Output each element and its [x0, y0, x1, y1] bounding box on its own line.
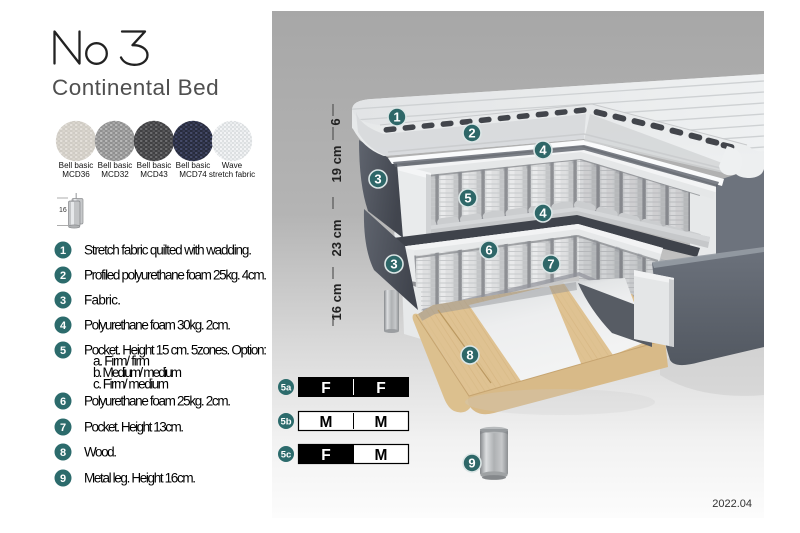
svg-text:2: 2 [60, 270, 66, 282]
svg-text:Wave: Wave [222, 161, 243, 170]
svg-text:MCD43: MCD43 [140, 170, 168, 179]
svg-text:Bell basic: Bell basic [176, 161, 211, 170]
svg-text:9: 9 [60, 473, 66, 485]
svg-text:MCD36: MCD36 [62, 170, 90, 179]
svg-text:c. Firm/ medium: c. Firm/ medium [93, 377, 169, 392]
svg-text:Polyurethane foam 25kg. 2cm.: Polyurethane foam 25kg. 2cm. [84, 394, 231, 409]
svg-text:Continental Bed: Continental Bed [52, 75, 219, 100]
svg-text:1: 1 [60, 245, 66, 257]
svg-text:Bell basic: Bell basic [137, 161, 172, 170]
svg-text:6: 6 [60, 396, 66, 408]
svg-text:Wood.: Wood. [84, 445, 117, 460]
svg-text:Bell basic: Bell basic [98, 161, 133, 170]
svg-text:4: 4 [60, 320, 67, 332]
svg-text:7: 7 [60, 422, 66, 434]
svg-text:MCD32: MCD32 [101, 170, 129, 179]
svg-text:Fabric.: Fabric. [84, 293, 121, 308]
svg-text:Profiled polyurethane foam 25k: Profiled polyurethane foam 25kg. 4cm. [84, 268, 267, 283]
svg-text:Polyurethane foam 30kg. 2cm.: Polyurethane foam 30kg. 2cm. [84, 318, 231, 333]
svg-text:MCD74: MCD74 [179, 170, 207, 179]
svg-text:Pocket. Height 13cm.: Pocket. Height 13cm. [84, 420, 184, 435]
svg-text:3: 3 [60, 295, 66, 307]
svg-text:16: 16 [59, 207, 67, 214]
svg-text:Stretch fabric quilted with wa: Stretch fabric quilted with wadding. [84, 243, 252, 258]
svg-text:8: 8 [60, 447, 66, 459]
svg-text:Metal leg. Height 16cm.: Metal leg. Height 16cm. [84, 471, 196, 486]
svg-text:stretch fabric: stretch fabric [209, 170, 255, 179]
svg-text:Bell basic: Bell basic [59, 161, 94, 170]
svg-text:5: 5 [60, 345, 66, 357]
